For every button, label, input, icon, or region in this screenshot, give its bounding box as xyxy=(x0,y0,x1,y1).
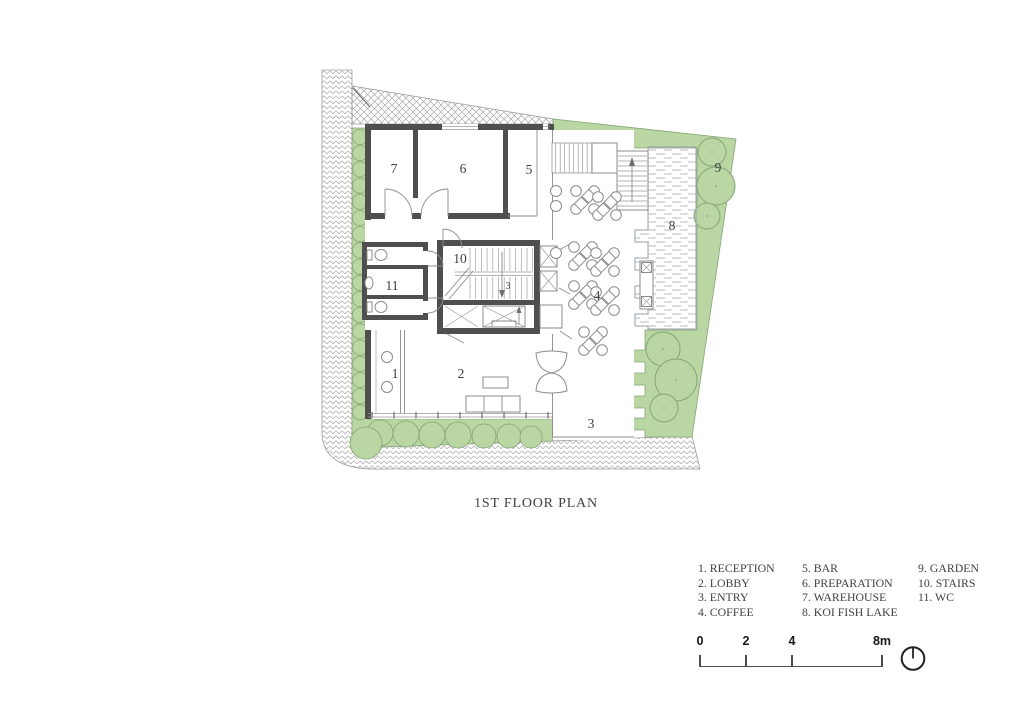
bush-icon xyxy=(520,426,542,448)
legend-item: 5. BAR xyxy=(802,561,918,576)
stool-icon xyxy=(551,201,562,212)
legend-item: 10. STAIRS xyxy=(918,576,979,591)
chair-icon xyxy=(611,210,622,221)
chair-icon xyxy=(569,281,580,292)
chair-icon xyxy=(609,305,620,316)
stair-direction-note: 3 xyxy=(506,281,511,292)
legend: 1. RECEPTION2. LOBBY3. ENTRY4. COFFEE5. … xyxy=(698,561,979,619)
chair-icon xyxy=(571,186,582,197)
legend-item: 9. GARDEN xyxy=(918,561,979,576)
tree-center-dot xyxy=(675,379,677,381)
chair-icon xyxy=(579,327,590,338)
legend-item: 6. PREPARATION xyxy=(802,576,918,591)
scale-tick-label: 0 xyxy=(686,634,714,648)
site-hatch-top-wedge xyxy=(352,86,553,124)
lake-bridge xyxy=(640,261,653,309)
tree-center-dot xyxy=(663,407,665,409)
room-label-coffee: 4 xyxy=(594,288,601,303)
lake-stairs xyxy=(617,151,648,210)
entry-walkway xyxy=(552,143,617,173)
legend-column: 9. GARDEN10. STAIRS11. WC xyxy=(918,561,979,619)
stool-icon xyxy=(551,248,562,259)
scale-tick-label: 2 xyxy=(732,634,760,648)
scale-tick-label: 8m xyxy=(868,634,896,648)
scale-tick xyxy=(745,655,747,667)
bush-icon xyxy=(445,422,471,448)
page: { "window": { "width": 1024, "height": 7… xyxy=(0,0,1024,724)
stool-icon xyxy=(551,186,562,197)
legend-item: 3. ENTRY xyxy=(698,590,802,605)
bush-icon xyxy=(419,422,445,448)
room-label-garden: 9 xyxy=(715,160,722,175)
tree-center-dot xyxy=(715,185,717,187)
room-label-entry: 3 xyxy=(588,416,595,431)
legend-item: 4. COFFEE xyxy=(698,605,802,620)
scale-tick xyxy=(699,655,701,667)
scale-tick xyxy=(791,655,793,667)
chair-icon xyxy=(569,242,580,253)
walkway-landing xyxy=(592,143,617,173)
room-label-reception: 1 xyxy=(392,366,399,381)
room-label-koi-fish-lake: 8 xyxy=(669,218,676,233)
room-label-wc: 11 xyxy=(386,278,399,293)
legend-item: 1. RECEPTION xyxy=(698,561,802,576)
walkway-treads xyxy=(552,143,592,173)
chair-icon xyxy=(597,345,608,356)
bush-icon xyxy=(393,421,419,447)
room-label-stairs: 10 xyxy=(453,251,467,266)
legend-column: 1. RECEPTION2. LOBBY3. ENTRY4. COFFEE xyxy=(698,561,802,619)
north-arrow-icon xyxy=(899,645,927,673)
room-label-warehouse: 7 xyxy=(391,161,398,176)
tree-center-dot xyxy=(711,151,713,153)
plan-title: 1ST FLOOR PLAN xyxy=(426,496,646,512)
legend-item: 8. KOI FISH LAKE xyxy=(802,605,918,620)
bush-icon xyxy=(350,427,382,459)
bush-icon xyxy=(497,424,521,448)
room-label-bar: 5 xyxy=(526,162,533,177)
legend-item: 7. WAREHOUSE xyxy=(802,590,918,605)
bush-icon xyxy=(472,424,496,448)
legend-column: 5. BAR6. PREPARATION7. WAREHOUSE8. KOI F… xyxy=(802,561,918,619)
legend-item: 2. LOBBY xyxy=(698,576,802,591)
tree-center-dot xyxy=(706,215,708,217)
tree-center-dot xyxy=(662,348,664,350)
scale-tick xyxy=(881,655,883,667)
room-label-preparation: 6 xyxy=(460,161,467,176)
chair-icon xyxy=(591,248,602,259)
chair-icon xyxy=(593,192,604,203)
chair-icon xyxy=(609,266,620,277)
scale-tick-label: 4 xyxy=(778,634,806,648)
room-label-lobby: 2 xyxy=(458,366,465,381)
scale-bar: 0248m xyxy=(692,634,902,672)
legend-item: 11. WC xyxy=(918,590,979,605)
